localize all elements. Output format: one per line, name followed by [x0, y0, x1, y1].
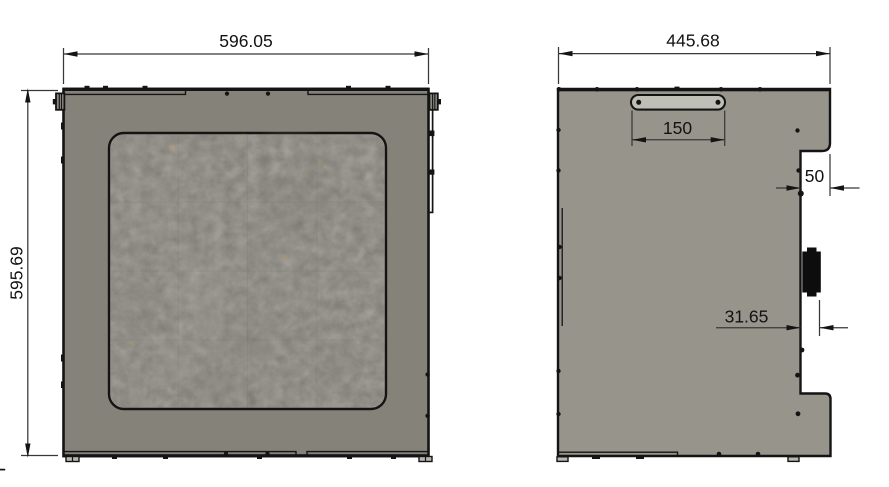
svg-text:31.65: 31.65	[725, 307, 769, 327]
svg-text:445.68: 445.68	[666, 31, 720, 51]
svg-text:595.69: 595.69	[7, 246, 27, 300]
svg-text:150: 150	[663, 118, 692, 138]
svg-text:596.05: 596.05	[219, 31, 273, 51]
svg-text:50: 50	[805, 166, 825, 186]
